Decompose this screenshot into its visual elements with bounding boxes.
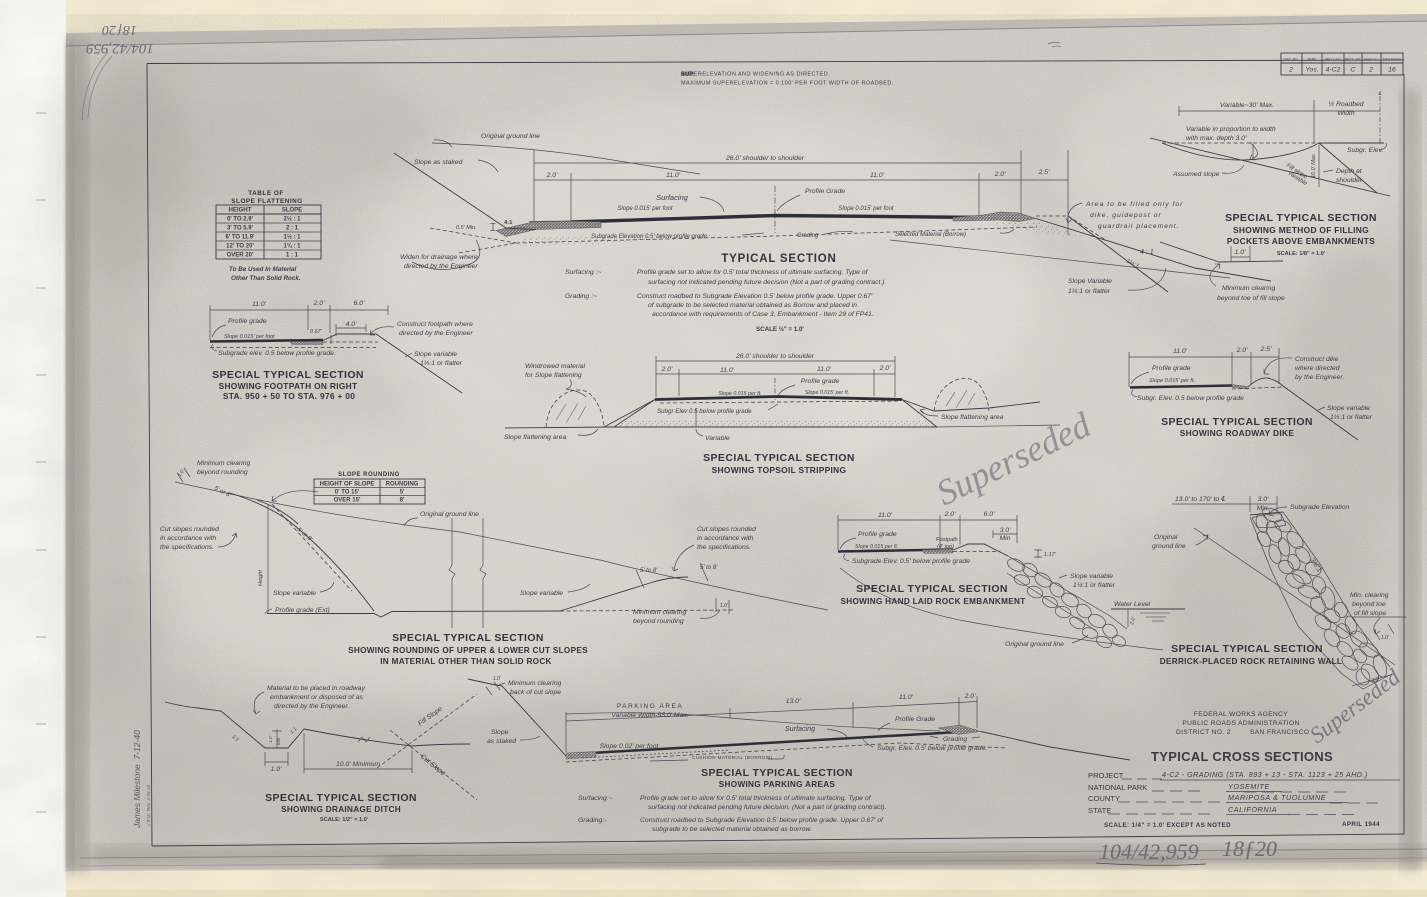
svg-text:Surfacing:~: Surfacing:~ [578,795,613,802]
svg-text:Original ground line: Original ground line [420,511,479,518]
svg-text:SHOWING FOOTPATH ON RIGHT: SHOWING FOOTPATH ON RIGHT [219,381,358,391]
svg-text:SAN FRANCISCO: SAN FRANCISCO [1250,729,1309,736]
svg-text:SLOPE ROUNDING: SLOPE ROUNDING [338,472,400,478]
svg-text:COUNTY: COUNTY [1088,794,1120,803]
svg-text:Surfacing: Surfacing [656,193,689,202]
svg-text:DISTRICT NO. 2: DISTRICT NO. 2 [1176,729,1231,736]
svg-text:1.0': 1.0' [1235,249,1246,256]
svg-text:1¼:1 or flatter: 1¼:1 or flatter [1073,582,1116,589]
svg-text:1.0': 1.0' [1381,635,1390,641]
svg-text:Slope variable: Slope variable [1070,573,1113,580]
svg-text:Construct footpath where: Construct footpath where [397,321,473,328]
svg-text:directed by the Engineer: directed by the Engineer [404,263,478,270]
svg-text:Variable: Variable [705,435,730,442]
svg-text:Profile grade (Ext): Profile grade (Ext) [275,607,330,614]
svg-text:Area to be filled only for: Area to be filled only for [1085,201,1183,208]
svg-text:surfacing not indicated pendin: surfacing not indicated pending future d… [648,279,885,286]
svg-text:of fill slope: of fill slope [1354,610,1386,617]
svg-text:SLOPE: SLOPE [282,208,302,214]
svg-text:16: 16 [1388,67,1396,74]
svg-text:accordance with requirements o: accordance with requirements of Case 3, … [652,311,874,318]
svg-text:Min. clearing: Min. clearing [1350,592,1389,599]
svg-text:ground line: ground line [1152,543,1186,550]
svg-text:Slope variable: Slope variable [414,351,457,358]
svg-text:IN MATERIAL OTHER THAN SOLID R: IN MATERIAL OTHER THAN SOLID ROCK [380,657,552,666]
svg-text:1½ : 1: 1½ : 1 [283,234,301,241]
svg-text:11.0': 11.0' [817,366,832,373]
svg-text:SPECIAL TYPICAL SECTION: SPECIAL TYPICAL SECTION [1161,416,1313,428]
svg-text:Subgrade Elevation 0.5' below: Subgrade Elevation 0.5' below profile gr… [591,234,708,240]
svg-text:POCKETS ABOVE EMBANKMENTS: POCKETS ABOVE EMBANKMENTS [1227,236,1375,246]
svg-text:2.0': 2.0' [661,366,673,373]
svg-text:SPECIAL TYPICAL SECTION: SPECIAL TYPICAL SECTION [392,632,544,644]
svg-text:Grading: Grading [797,233,819,239]
svg-text:11.0': 11.0' [720,367,735,374]
svg-text:Subgrade Elev. 0.5' below prof: Subgrade Elev. 0.5' below profile grade [852,558,970,565]
svg-text:2.5': 2.5' [1260,346,1272,353]
svg-text:SPECIAL TYPICAL SECTION: SPECIAL TYPICAL SECTION [265,792,417,804]
svg-text:Slope variable: Slope variable [273,590,316,597]
svg-text:Slope Variable: Slope Variable [1068,278,1112,285]
svg-text:11.0': 11.0' [899,694,914,701]
svg-text:Widen for drainage where: Widen for drainage where [400,254,478,261]
svg-text:3.0': 3.0' [1258,496,1269,503]
svg-text:SHOWING METHOD OF FILLING: SHOWING METHOD OF FILLING [1233,225,1369,235]
svg-text:Subgr. Elev. 0.5 below profile: Subgr. Elev. 0.5 below profile grade [1137,395,1244,402]
svg-text:CUSHION MATERIAL (BORROW): CUSHION MATERIAL (BORROW) [692,755,773,760]
svg-text:ROUNDING: ROUNDING [386,482,419,488]
svg-text:as staked: as staked [487,738,516,745]
svg-text:26.0' shoulder to shoulder: 26.0' shoulder to shoulder [725,155,805,162]
svg-text:0' TO 2.9': 0' TO 2.9' [227,217,254,223]
svg-text:where directed: where directed [1295,365,1340,372]
svg-text:Profile grade: Profile grade [858,531,897,538]
svg-text:SPECIAL TYPICAL SECTION: SPECIAL TYPICAL SECTION [1171,643,1323,655]
svg-text:Construct roadbed to Subgrade: Construct roadbed to Subgrade Elevation … [637,293,873,300]
svg-text:2.0': 2.0' [546,172,558,179]
svg-text:Min: Min [1000,535,1011,542]
svg-text:Subgrade elev. 0.5 below profi: Subgrade elev. 0.5 below profile grade. [218,350,336,357]
svg-text:2.5': 2.5' [1038,169,1050,176]
svg-text:beyond rounding: beyond rounding [197,469,248,476]
svg-text:2.0': 2.0' [944,511,956,518]
svg-text:2.0': 2.0' [879,365,891,372]
svg-text:Surfacing: Surfacing [785,724,815,733]
svg-text:Variable in proportion to widt: Variable in proportion to width [1186,126,1276,133]
svg-text:PARKING AREA: PARKING AREA [617,703,684,710]
svg-text:PROJECT: PROJECT [1088,771,1124,780]
svg-text:YOSEMITE: YOSEMITE [1228,782,1270,791]
svg-text:Original: Original [1154,534,1178,541]
svg-text:1.0': 1.0' [720,603,729,609]
svg-text:Profile Grade: Profile Grade [895,716,935,723]
svg-text:Minimum clearing: Minimum clearing [197,460,250,467]
svg-text:SECT. NO.: SECT. NO. [1345,58,1362,62]
svg-text:Slope 0.015' per foot: Slope 0.015' per foot [838,206,894,212]
svg-text:Slope 0.015' per foot: Slope 0.015' per foot [224,334,275,340]
svg-text:1.17': 1.17' [1044,552,1057,558]
svg-text:Windrowed material: Windrowed material [525,363,585,370]
svg-text:MARIPOSA & TUOLUMNE: MARIPOSA & TUOLUMNE [1228,793,1326,802]
svg-text:Profile Grade: Profile Grade [805,188,845,195]
svg-text:4.0': 4.0' [346,321,357,328]
svg-text:SHOWING DRAINAGE DITCH: SHOWING DRAINAGE DITCH [281,805,401,814]
svg-text:SHOWING HAND LAID ROCK EMBANKM: SHOWING HAND LAID ROCK EMBANKMENT [840,597,1025,606]
svg-text:0' TO 15': 0' TO 15' [335,490,360,496]
svg-text:surfacing not indicated pendin: surfacing not indicated pending future d… [648,804,887,811]
svg-text:6' TO 11.9': 6' TO 11.9' [225,235,255,241]
svg-text:Min: Min [276,737,281,745]
svg-text:Minimum clearing: Minimum clearing [1222,285,1275,292]
svg-text:SHOWING TOPSOIL STRIPPING: SHOWING TOPSOIL STRIPPING [712,465,847,475]
svg-text:DIST. NO.: DIST. NO. [1283,58,1298,62]
svg-text:Slope 0.02' per foot: Slope 0.02' per foot [600,743,660,750]
svg-text:Slope 0.015' per ft.: Slope 0.015' per ft. [805,390,849,396]
svg-text:SPECIAL TYPICAL SECTION: SPECIAL TYPICAL SECTION [703,452,855,464]
svg-text:OVER 15': OVER 15' [334,498,361,504]
svg-text:1 : 1: 1 : 1 [286,253,299,259]
svg-text:104/42,959: 104/42,959 [1099,839,1199,864]
svg-text:with max. depth 3.0': with max. depth 3.0' [1186,135,1247,142]
svg-text:Footpath: Footpath [936,537,958,543]
svg-text:Water Level: Water Level [1114,601,1151,608]
svg-text:Assumed slope: Assumed slope [1172,171,1220,178]
svg-text:11.0': 11.0' [878,512,893,519]
svg-text:MAXIMUM SUPERELEVATION = 0.100: MAXIMUM SUPERELEVATION = 0.100' PER FOOT… [681,81,894,87]
svg-text:Cut slopes rounded: Cut slopes rounded [697,526,756,533]
svg-text:18ƒ20: 18ƒ20 [1222,836,1277,861]
svg-text:TYPICAL CROSS SECTIONS: TYPICAL CROSS SECTIONS [1151,749,1333,764]
svg-text:2½ : 1: 2½ : 1 [283,216,301,223]
svg-text:directed by the Engineer: directed by the Engineer [399,330,473,337]
svg-text:1⅓:1 or flatter: 1⅓:1 or flatter [420,360,463,367]
svg-text:Variable Width-55.0' Max.: Variable Width-55.0' Max. [611,712,688,719]
svg-text:6.0': 6.0' [984,511,995,518]
svg-text:10.0' Max.: 10.0' Max. [1311,153,1317,178]
svg-text:beyond toe: beyond toe [1352,601,1386,608]
svg-text:PARK: PARK [1308,58,1318,62]
svg-text:FEDERAL WORKS AGENCY: FEDERAL WORKS AGENCY [1194,711,1288,718]
svg-text:5' to 8': 5' to 8' [700,565,718,571]
svg-text:SHOWING ROADWAY DIKE: SHOWING ROADWAY DIKE [1180,428,1295,438]
svg-text:Slope 0.015 per ft.: Slope 0.015 per ft. [855,544,898,550]
svg-text:11.0': 11.0' [870,172,885,179]
svg-text:4-C2 - GRADING (STA. 893 + 13: 4-C2 - GRADING (STA. 893 + 13 - STA. 112… [1162,770,1368,779]
svg-text:1¼ : 1: 1¼ : 1 [283,243,301,250]
svg-text:2.0': 2.0' [313,300,325,307]
svg-text:OVER 20': OVER 20' [227,253,254,259]
svg-text:(4' top): (4' top) [937,544,954,550]
svg-text:12' TO 20': 12' TO 20' [226,244,254,250]
svg-text:shoulder: shoulder [1336,177,1363,184]
svg-text:SCALE ½" = 1.0': SCALE ½" = 1.0' [756,326,804,333]
svg-text:in accordance with: in accordance with [697,535,754,542]
svg-text:1.0': 1.0' [268,736,273,743]
svg-text:C: C [1351,67,1356,74]
svg-text:2 : 1: 2 : 1 [286,226,299,232]
svg-text:SPECIAL TYPICAL SECTION: SPECIAL TYPICAL SECTION [701,767,853,779]
svg-text:26.0' shoulder to shoulder: 26.0' shoulder to shoulder [735,353,815,360]
svg-text:DERRICK-PLACED ROCK RETAINING: DERRICK-PLACED ROCK RETAINING WALL [1160,657,1342,666]
svg-text:James Milestone 7-12-40: James Milestone 7-12-40 [132,730,142,829]
svg-text:Variable~30' Max.: Variable~30' Max. [1220,102,1274,109]
svg-text:SCALE: 1/2" = 1.0': SCALE: 1/2" = 1.0' [320,817,369,823]
svg-text:Construct roadbed to Subgrade: Construct roadbed to Subgrade Elevation … [640,817,884,824]
svg-text:Selected Material (Borrow): Selected Material (Borrow) [895,232,966,238]
svg-text:Profile grade: Profile grade [1152,365,1191,372]
svg-text:Construct dike: Construct dike [1295,356,1339,363]
svg-text:guardrail placement.: guardrail placement. [1098,223,1180,230]
svg-text:Material to be placed in roadw: Material to be placed in roadway [267,685,365,692]
svg-text:18ƒ20: 18ƒ20 [102,22,137,37]
svg-text:SCALE: 1/8" = 1.0': SCALE: 1/8" = 1.0' [1277,251,1326,257]
svg-text:3.0': 3.0' [1000,527,1011,534]
svg-text:3' TO 5.9': 3' TO 5.9' [227,226,254,232]
svg-text:Grading :~: Grading :~ [565,293,597,300]
svg-text:STA. 950 + 50 TO STA. 976 + 00: STA. 950 + 50 TO STA. 976 + 00 [223,391,355,401]
svg-text:Original ground line: Original ground line [481,133,540,140]
svg-text:2.0': 2.0' [994,171,1006,178]
svg-text:PUBLIC ROADS ADMINISTRATION: PUBLIC ROADS ADMINISTRATION [1182,720,1299,727]
svg-text:in accordance with: in accordance with [160,535,217,542]
svg-text:Profile grade set to allow for: Profile grade set to allow for 0.5' tota… [637,269,869,276]
svg-text:SPECIAL TYPICAL SECTION: SPECIAL TYPICAL SECTION [212,369,364,381]
svg-text:Total Sheets: Total Sheets [1383,58,1402,62]
svg-text:Subgr. Elev. 0.5' below profil: Subgr. Elev. 0.5' below profile grade. [877,745,987,752]
svg-text:Slope 0.015' per ft.: Slope 0.015' per ft. [1149,378,1195,384]
svg-text:SPECIAL TYPICAL SECTION: SPECIAL TYPICAL SECTION [856,583,1008,595]
svg-text:6.0': 6.0' [354,300,365,307]
svg-text:13.0' to 170' to ℄: 13.0' to 170' to ℄ [1175,496,1226,503]
svg-text:Other Than Solid Rock.: Other Than Solid Rock. [231,275,301,282]
svg-text:STATE: STATE [1088,806,1111,815]
svg-text:Yos.: Yos. [1305,67,1318,74]
svg-text:PROJ. NO.: PROJ. NO. [1325,58,1342,62]
svg-text:11.0': 11.0' [666,172,681,179]
svg-text:4 : 1: 4 : 1 [1140,249,1154,256]
svg-text:by the Engineer.: by the Engineer. [1295,374,1344,381]
svg-text:SCALE: 1/4" = 1.0' EXCEPT A: SCALE: 1/4" = 1.0' EXCEPT AS NOTED [1104,822,1231,829]
svg-text:2.0': 2.0' [964,693,976,700]
svg-text:dike, guidepost or: dike, guidepost or [1090,212,1162,219]
svg-text:Profile grade: Profile grade [801,378,840,385]
svg-text:Slope as staked: Slope as staked [414,159,463,166]
svg-text:NATIONAL PARK: NATIONAL PARK [1088,783,1147,792]
svg-text:Grading:-: Grading:- [578,817,607,824]
svg-text:directed by the Engineer.: directed by the Engineer. [274,703,349,710]
svg-text:5': 5' [400,490,405,496]
svg-text:SHOWING PARKING AREAS: SHOWING PARKING AREAS [719,780,836,789]
svg-text:0.67': 0.67' [310,329,323,335]
svg-text:HEIGHT OF SLOPE: HEIGHT OF SLOPE [320,482,375,488]
svg-text:HEIGHT: HEIGHT [229,208,252,214]
svg-text:Slope: Slope [491,729,509,736]
svg-text:11.0': 11.0' [1173,348,1188,355]
svg-text:Original ground line: Original ground line [1005,641,1064,648]
svg-text:Grading: Grading [943,736,967,743]
svg-text:1.0': 1.0' [271,766,282,773]
svg-text:Minimum clearing: Minimum clearing [508,680,561,687]
svg-text:2: 2 [1368,67,1373,74]
svg-text:the specifications.: the specifications. [697,544,751,551]
svg-text:SHOWING ROUNDING OF UPPER & LO: SHOWING ROUNDING OF UPPER & LOWER CUT SL… [348,646,588,655]
svg-text:Slope flattening area: Slope flattening area [504,434,567,441]
svg-text:Slope variable: Slope variable [1327,405,1370,412]
svg-text:1⅓:1 or flatter: 1⅓:1 or flatter [1330,414,1373,421]
svg-text:CALIFORNIA: CALIFORNIA [1228,805,1277,814]
svg-text:SPECIAL TYPICAL SECTION: SPECIAL TYPICAL SECTION [1225,212,1377,224]
svg-text:13.0': 13.0' [786,698,801,705]
svg-text:SLOPE FLATTENING: SLOPE FLATTENING [231,198,302,205]
svg-text:APRIL 1944: APRIL 1944 [1342,821,1380,828]
svg-text:TABLE OF: TABLE OF [248,190,283,197]
svg-text:subgrade to be selected materi: subgrade to be selected material obtaine… [652,826,812,833]
svg-text:SUPERELEVATION AND WIDENING AS: SUPERELEVATION AND WIDENING AS DIRECTED. [681,72,830,78]
svg-text:2.0': 2.0' [1236,347,1248,354]
svg-text:To Be Used In Material: To Be Used In Material [229,266,297,273]
svg-text:1⅓:1 or flatter: 1⅓:1 or flatter [1068,288,1111,295]
svg-text:the specifications.: the specifications. [160,544,214,551]
svg-text:11.0': 11.0' [252,301,267,308]
svg-text:back of cut slope: back of cut slope [510,689,561,696]
svg-text:for Slope flattening: for Slope flattening [525,372,582,379]
svg-text:Depth at: Depth at [1336,168,1363,175]
svg-text:104/42,959: 104/42,959 [86,40,154,56]
svg-text:Height: Height [258,570,264,586]
svg-text:Subgr Elev 0.5 below profile g: Subgr Elev 0.5 below profile grade [657,408,752,415]
svg-text:TYPICAL SECTION: TYPICAL SECTION [721,253,836,265]
svg-text:of subgrade to be selected mat: of subgrade to be selected material obta… [648,302,857,309]
svg-text:8': 8' [400,498,405,504]
svg-text:Profile grade: Profile grade [228,318,267,325]
svg-text:v R.W. Rev. 4-28-44: v R.W. Rev. 4-28-44 [146,784,151,826]
svg-text:4-C2: 4-C2 [1326,67,1341,74]
svg-text:5' to 8': 5' to 8' [640,568,658,574]
svg-text:Width: Width [1337,110,1355,117]
svg-text:Slope 0.015' per foot: Slope 0.015' per foot [617,206,673,212]
svg-text:2: 2 [1288,67,1293,74]
svg-text:Slope flattening area: Slope flattening area [941,414,1004,421]
svg-text:embankment or disposed of as: embankment or disposed of as [270,694,364,701]
svg-text:Slope variable: Slope variable [520,590,563,597]
svg-text:beyond toe of fill slope: beyond toe of fill slope [1217,295,1285,302]
svg-text:Subgrade Elevation: Subgrade Elevation [1290,504,1350,511]
svg-text:4:1: 4:1 [504,220,513,226]
svg-text:Profile grade set to allow for: Profile grade set to allow for 0.5' tota… [640,795,872,802]
svg-text:1.0': 1.0' [493,676,502,682]
svg-text:Subgr. Elev.: Subgr. Elev. [1347,147,1383,154]
svg-text:0.5' Min.: 0.5' Min. [456,225,477,231]
svg-text:Cut slopes rounded: Cut slopes rounded [160,526,219,533]
svg-text:½ Roadbed: ½ Roadbed [1328,100,1363,108]
svg-text:Minimum clearing: Minimum clearing [633,609,686,616]
svg-text:10.0' Minimum: 10.0' Minimum [336,761,380,768]
svg-text:Surfacing :~: Surfacing :~ [565,269,601,276]
svg-text:Sheet No.: Sheet No. [1363,58,1378,62]
svg-text:beyond rounding: beyond rounding [633,618,684,625]
